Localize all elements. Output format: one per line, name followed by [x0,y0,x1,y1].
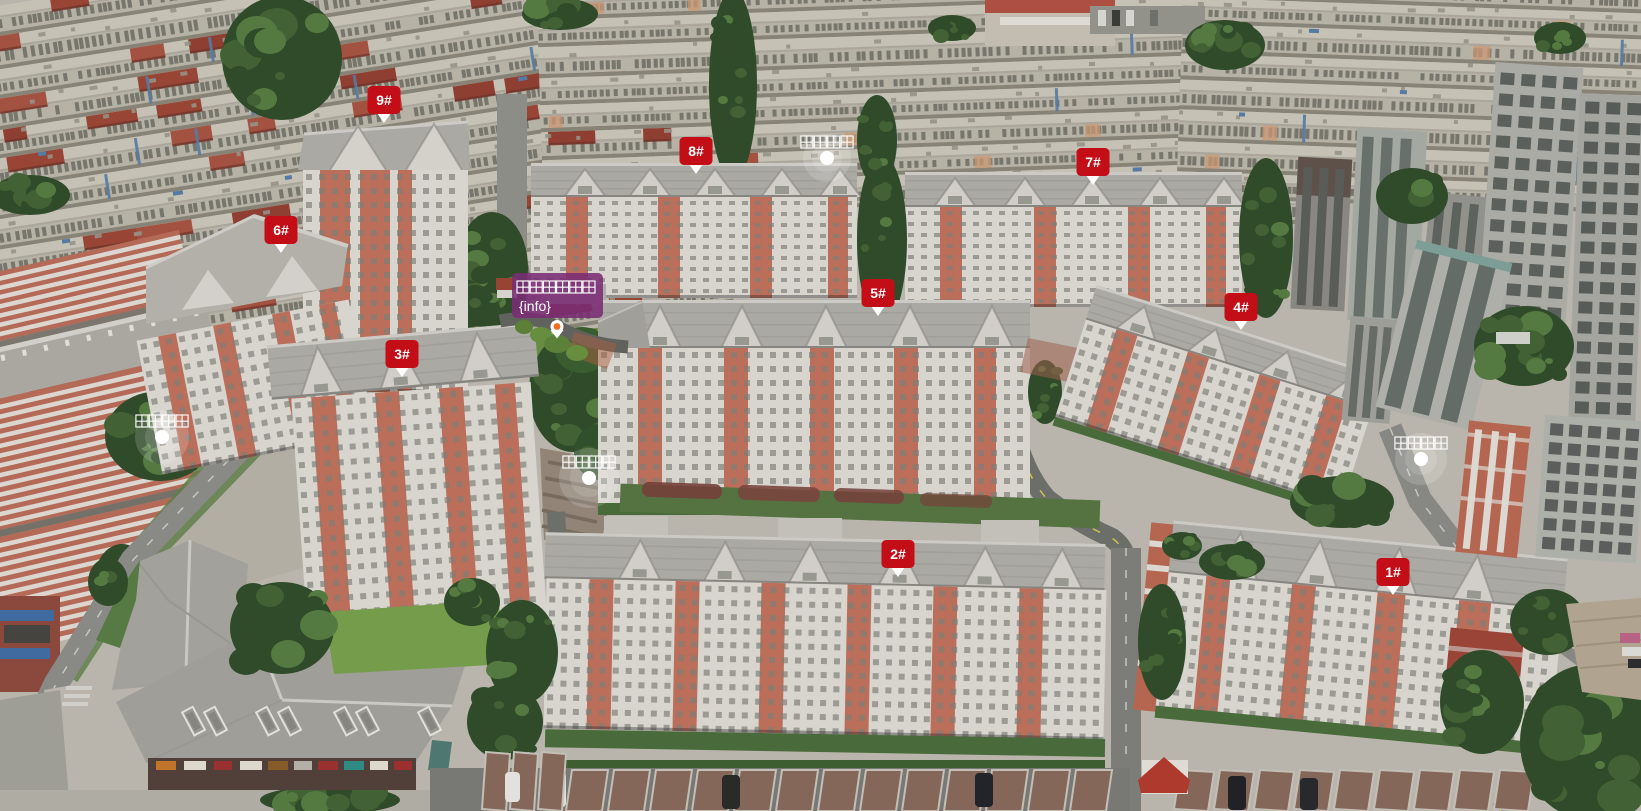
svg-text:{info}: {info} [519,298,551,314]
svg-text:6#: 6# [273,222,289,238]
svg-text:9#: 9# [376,92,392,108]
svg-text:5#: 5# [870,285,886,301]
svg-text:2#: 2# [890,546,906,562]
svg-text:4#: 4# [1233,299,1249,315]
svg-text:7#: 7# [1085,154,1101,170]
svg-text:3#: 3# [394,346,410,362]
svg-text:8#: 8# [688,143,704,159]
svg-text:1#: 1# [1385,564,1401,580]
